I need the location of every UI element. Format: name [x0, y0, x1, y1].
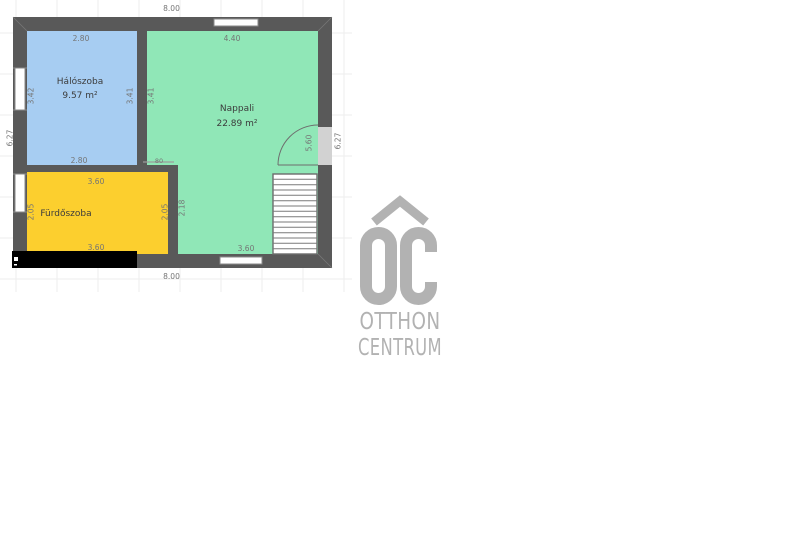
dim-bedroom-right: 3.41	[126, 87, 135, 104]
dim-bath-left: 2.05	[27, 203, 36, 220]
dim-bath-right: 2.05	[161, 203, 170, 220]
window-top	[214, 19, 258, 26]
logo-line2: CENTRUM	[358, 335, 442, 361]
wall-bedroom-bath	[13, 165, 178, 172]
dim-bath-top: 3.60	[88, 177, 105, 186]
dim-outer-right: 6.27	[334, 132, 343, 149]
window-left-lower	[15, 174, 25, 212]
room-bedroom-name: Hálószoba	[57, 76, 103, 87]
floorplan-page: 8.00 8.00 6.27 6.27 2.80 2.80 3.42 3.41 …	[0, 0, 800, 559]
dim-living-left-upper: 3.41	[147, 87, 156, 104]
dim-bedroom-bottom: 2.80	[71, 156, 88, 165]
logo-letter-o	[366, 233, 391, 299]
dim-bath-door-opening: 80	[155, 157, 163, 165]
room-bath-name: Fürdőszoba	[40, 209, 91, 219]
logo-line1: OTTHON	[360, 309, 441, 335]
window-left-upper	[15, 68, 25, 110]
otthon-centrum-logo: OTTHON CENTRUM	[358, 201, 444, 361]
wall-bedroom-living	[137, 17, 147, 165]
roof-chevron-icon	[374, 201, 426, 222]
black-bar	[12, 251, 137, 268]
dim-bedroom-left: 3.42	[27, 87, 36, 104]
logo-monogram	[366, 233, 444, 299]
dim-outer-top: 8.00	[163, 4, 180, 13]
dim-living-door-side: 5.60	[305, 134, 314, 151]
window-bottom	[220, 257, 262, 264]
room-living-area: 22.89 m²	[216, 119, 257, 129]
logo-letter-c-gap	[418, 252, 444, 282]
dim-outer-left: 6.27	[6, 129, 15, 146]
stairs	[273, 174, 317, 254]
dim-outer-bottom: 8.00	[163, 272, 180, 281]
dim-living-left-lower: 2.18	[178, 199, 187, 216]
dim-bath-bottom: 3.60	[88, 243, 105, 252]
dim-living-top: 4.40	[224, 34, 241, 43]
room-living-name: Nappali	[220, 104, 254, 114]
door-opening	[318, 127, 332, 165]
dim-living-bottom: 3.60	[238, 244, 255, 253]
floorplan-drawing: 8.00 8.00 6.27 6.27 2.80 2.80 3.42 3.41 …	[0, 0, 800, 559]
dim-bedroom-top: 2.80	[73, 34, 90, 43]
room-bedroom-area: 9.57 m²	[62, 91, 98, 101]
